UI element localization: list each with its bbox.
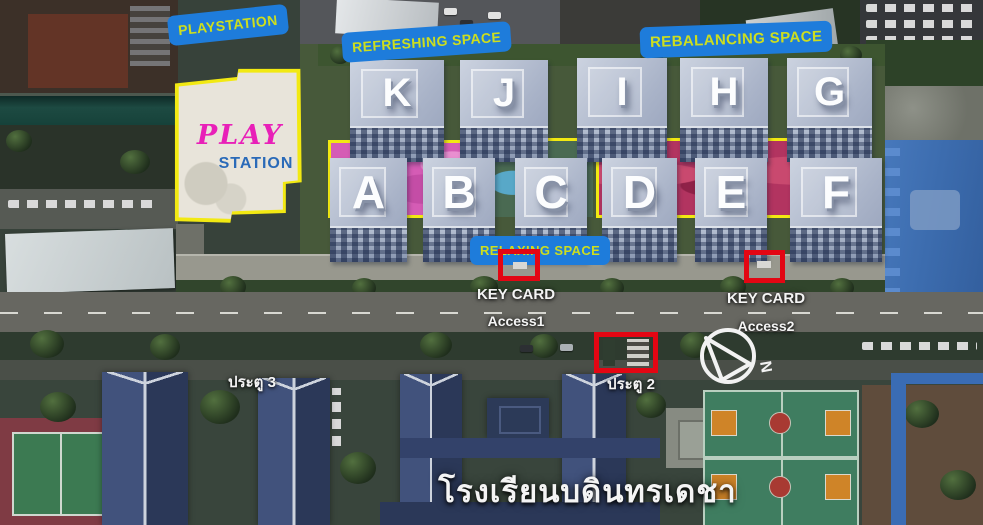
keycard2-title: KEY CARD [696,290,836,307]
tree [340,452,376,484]
car [444,8,457,15]
parked-cars-column [332,388,341,446]
keycard-access2-marker [744,250,785,283]
tag-relaxing-space: RELAXING SPACE [470,236,610,265]
blue-walkway-vertical [891,380,906,525]
basketball-court [703,390,859,458]
parked-cars-row [866,20,978,28]
building-A: A [330,158,407,262]
tree [6,130,32,152]
school-wing [400,438,660,458]
building-letter-D: D [602,162,677,222]
keycard1-title: KEY CARD [446,286,586,303]
keycard1-name: Access1 [446,313,586,329]
building-letter-I: I [577,62,667,122]
building-letter-G: G [787,62,872,122]
building-letter-K: K [350,64,444,123]
gate2-marker [594,332,658,373]
construction-materials [130,6,170,66]
building-H: H [680,58,768,162]
construction-dirt [28,14,128,88]
building-letter-E: E [695,162,767,222]
building-facade [787,126,872,162]
gate-barrier [513,262,527,269]
tree [420,332,452,358]
court-key [825,410,851,436]
east-building-roof-patch [910,190,960,230]
building-facade [680,126,768,162]
tree [200,390,240,424]
left-parking-lot [0,189,178,229]
school-building [258,378,330,525]
building-letter-C: C [515,162,587,222]
tennis-court-net-line [60,432,62,514]
tree [120,150,150,174]
building-J: J [460,60,548,162]
station-text: STATION [206,155,306,173]
building-letter-B: B [423,162,495,222]
tree [30,330,64,358]
play-text: PLAY [190,120,290,151]
parked-cars-row [866,4,978,12]
school-name: โรงเรียนบดินทรเดชา [415,466,760,516]
gate3-label: ประตู 3 [192,370,312,394]
canal [0,93,178,128]
white-roof-building [5,228,175,294]
gate-structure [603,339,615,366]
car [520,345,533,352]
court-key [825,474,851,500]
building-E: E [695,158,767,262]
compass: N [694,324,772,388]
compass-north-label: N [756,360,772,374]
building-letter-H: H [680,62,768,122]
building-facade [577,126,667,162]
building-letter-F: F [790,162,882,222]
aerial-site-map: K J I H G A B C D E F PLAY ST [0,0,983,525]
gate-barrier [757,261,771,268]
parked-cars-row [862,342,977,350]
school-building [102,372,188,525]
gate2-label: ประตู 2 [571,372,691,396]
building-I: I [577,58,667,162]
school-hall-roof-tier [499,406,541,434]
building-G: G [787,58,872,162]
building-facade [330,226,407,262]
building-facade [790,226,882,262]
court-center-circle [769,476,791,498]
court-key [711,410,737,436]
tree [40,392,76,422]
tree [940,470,976,500]
building-D: D [602,158,677,262]
building-K: K [350,60,444,162]
tree [150,334,180,360]
compass-icon: N [694,324,772,388]
car [488,12,501,19]
crosswalk [627,339,649,366]
tree [530,334,558,358]
building-letter-J: J [460,64,548,123]
keycard-access1-marker [498,249,540,281]
court-center-circle [769,412,791,434]
car [560,344,573,351]
building-facade [350,126,444,162]
building-F: F [790,158,882,262]
building-facade [460,126,548,162]
building-facade [602,226,677,262]
tag-playstation: PLAYSTATION [167,4,289,46]
parked-cars-row [8,200,158,208]
building-letter-A: A [330,162,407,222]
tree [905,400,939,428]
